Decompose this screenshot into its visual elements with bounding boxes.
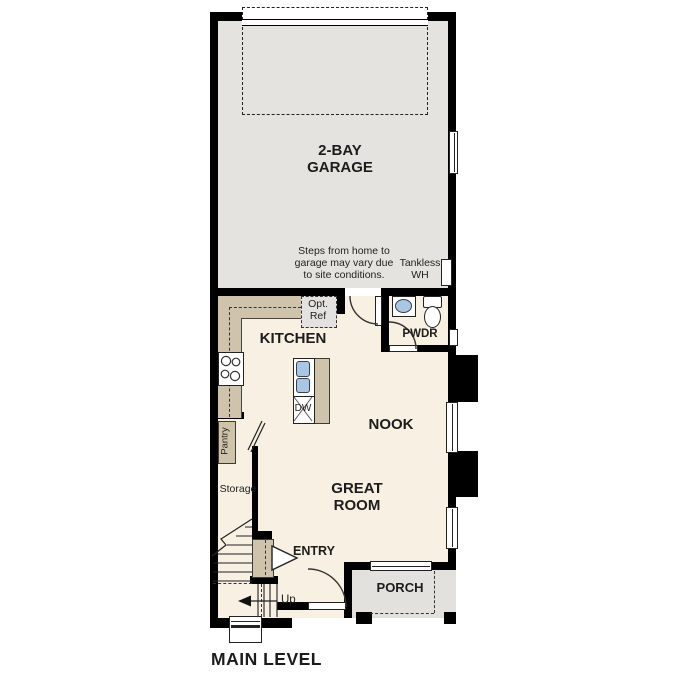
closet-rod-dash bbox=[265, 540, 266, 575]
kitchen-upper-cabinet-dash-h bbox=[229, 307, 301, 308]
stair-dash-lower bbox=[261, 584, 262, 617]
great-room-line1: GREAT bbox=[331, 481, 382, 498]
front-door-leaf bbox=[308, 602, 346, 610]
pwdr-sink-basin bbox=[395, 299, 412, 313]
plan-title: MAIN LEVEL bbox=[211, 650, 322, 670]
tankless-line2: WH bbox=[400, 270, 441, 282]
pantry-label: Pantry bbox=[221, 427, 232, 454]
up-label: Up bbox=[281, 594, 296, 607]
wall-garage-interior-left bbox=[218, 288, 345, 296]
porch-roofline-dash-v bbox=[434, 571, 435, 613]
tankless-water-heater-unit bbox=[441, 259, 452, 286]
opt-ref-line2: Ref bbox=[308, 311, 328, 323]
tankless-line1: Tankless bbox=[400, 258, 441, 270]
media-bay-upper bbox=[448, 355, 478, 402]
great-room-line2: ROOM bbox=[331, 498, 382, 515]
wall-stair-landing bbox=[252, 578, 278, 584]
tankless-wh-label: Tankless WH bbox=[400, 258, 441, 282]
stair-window bbox=[229, 616, 262, 643]
window-glazing bbox=[372, 566, 430, 567]
media-bay-lower bbox=[448, 451, 478, 497]
sink-basin-top bbox=[296, 361, 310, 377]
porch-window bbox=[370, 561, 432, 571]
wall-pwdr-south bbox=[416, 345, 448, 352]
wall-garage-top-left bbox=[210, 12, 242, 21]
pwdr-door-leaf bbox=[389, 345, 418, 352]
garage-label-line1: 2-BAY bbox=[307, 143, 373, 160]
dw-label: DW bbox=[295, 403, 312, 414]
entry-closet bbox=[252, 539, 274, 578]
opt-ref-line1: Opt. bbox=[308, 299, 328, 311]
wall-left bbox=[210, 12, 218, 628]
nook-label: NOOK bbox=[369, 417, 414, 434]
floor-plan: 2-BAY GARAGE Steps from home to garage m… bbox=[0, 0, 687, 687]
window-glazing bbox=[452, 404, 453, 451]
garage-entry-door-leaf bbox=[375, 296, 382, 326]
range-cooktop bbox=[218, 352, 244, 386]
storage-label: Storage bbox=[220, 484, 257, 496]
garage-side-window bbox=[449, 131, 458, 174]
kitchen-label: KITCHEN bbox=[260, 331, 327, 348]
wall-porch-top-left bbox=[344, 562, 370, 570]
wall-pwdr-left bbox=[381, 296, 389, 352]
garage-label-line2: GARAGE bbox=[307, 160, 373, 177]
entry-label: ENTRY bbox=[293, 544, 335, 558]
steps-disclaimer: Steps from home to garage may vary due t… bbox=[295, 246, 394, 281]
great-room-window bbox=[446, 507, 458, 549]
garage-door bbox=[242, 19, 428, 26]
great-room-label: GREAT ROOM bbox=[331, 481, 382, 515]
window-glazing bbox=[454, 133, 455, 172]
window-glazing bbox=[231, 621, 260, 625]
steps-note-line1: Steps from home to bbox=[295, 246, 394, 258]
pwdr-label: PWDR bbox=[402, 328, 437, 341]
pwdr-window bbox=[449, 329, 458, 346]
porch-label: PORCH bbox=[377, 581, 424, 596]
stair-dash bbox=[213, 583, 252, 584]
opt-ref-label: Opt. Ref bbox=[308, 299, 328, 323]
wall-garage-interior-right bbox=[381, 288, 456, 296]
sink-basin-bottom bbox=[296, 378, 310, 393]
porch-post-right bbox=[444, 612, 456, 624]
steps-note-line3: to site conditions. bbox=[295, 270, 394, 282]
wall-porch-top-right bbox=[430, 562, 456, 570]
toilet-bowl bbox=[424, 306, 441, 328]
steps-note-line2: garage may vary due bbox=[295, 258, 394, 270]
garage-label: 2-BAY GARAGE bbox=[307, 143, 373, 177]
nook-window bbox=[446, 402, 458, 453]
wall-closet-top bbox=[252, 531, 272, 539]
porch-roofline-dash-h bbox=[370, 613, 434, 614]
window-glazing bbox=[452, 509, 453, 547]
